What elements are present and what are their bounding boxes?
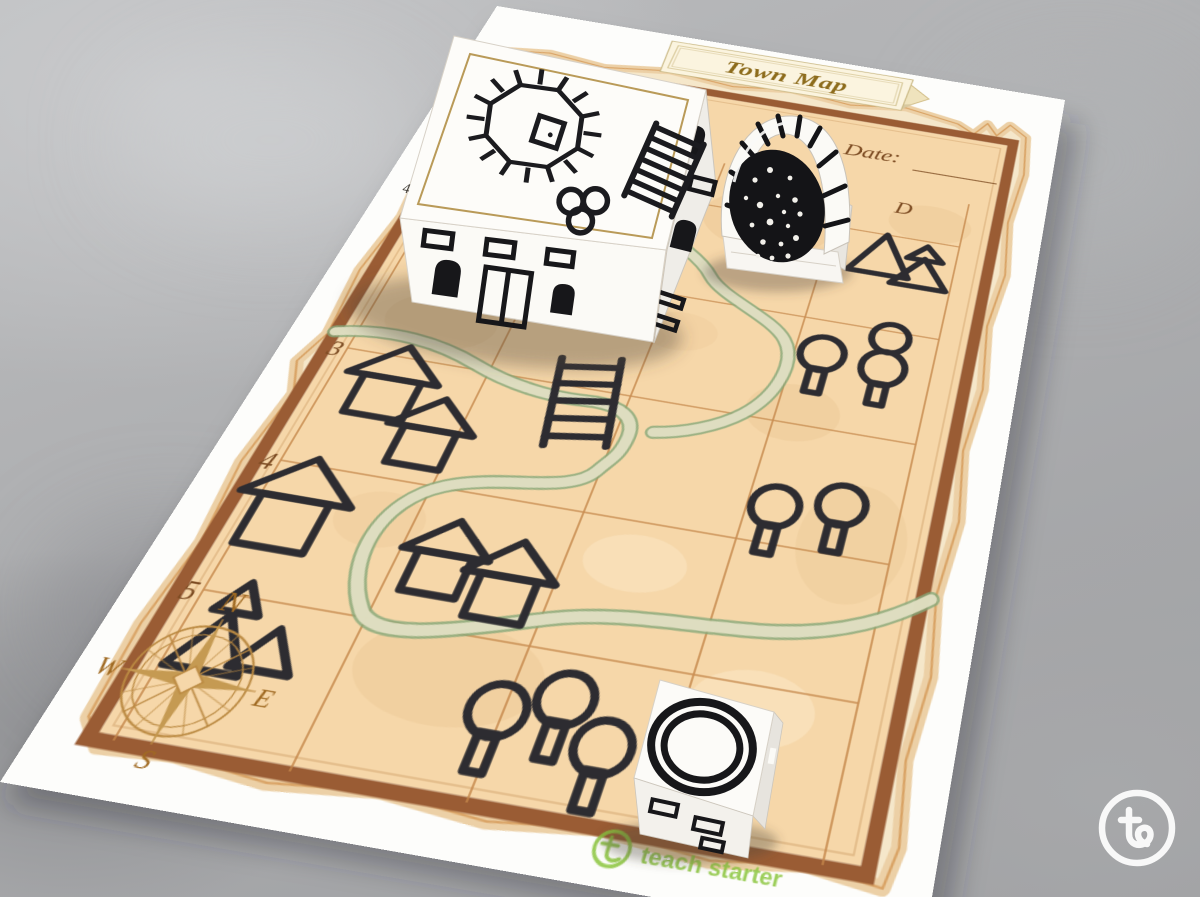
paper-models-layer: 4 [0, 0, 1200, 897]
castle-model: 4 [343, 36, 716, 383]
teach-starter-watermark-icon [1102, 793, 1172, 863]
photo-scene: 3 4 5 D [0, 0, 1200, 897]
cube-model [602, 680, 783, 864]
tunnel-model [704, 116, 852, 292]
